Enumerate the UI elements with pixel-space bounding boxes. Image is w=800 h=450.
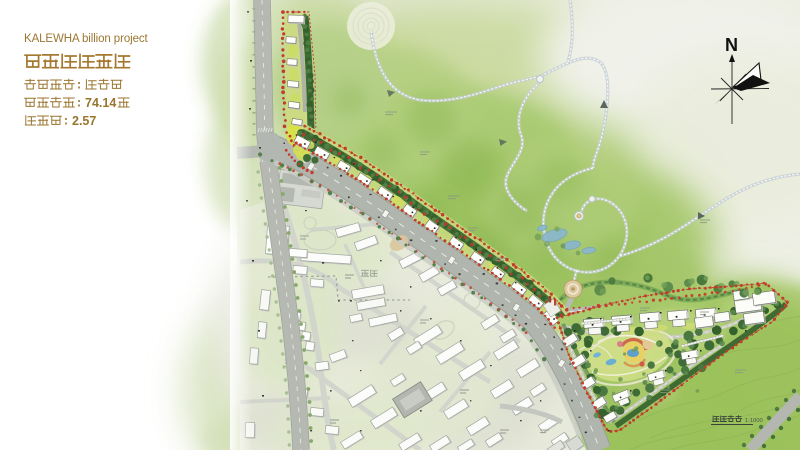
svg-text:N: N — [725, 35, 738, 55]
svg-text:1:1000: 1:1000 — [745, 418, 763, 424]
